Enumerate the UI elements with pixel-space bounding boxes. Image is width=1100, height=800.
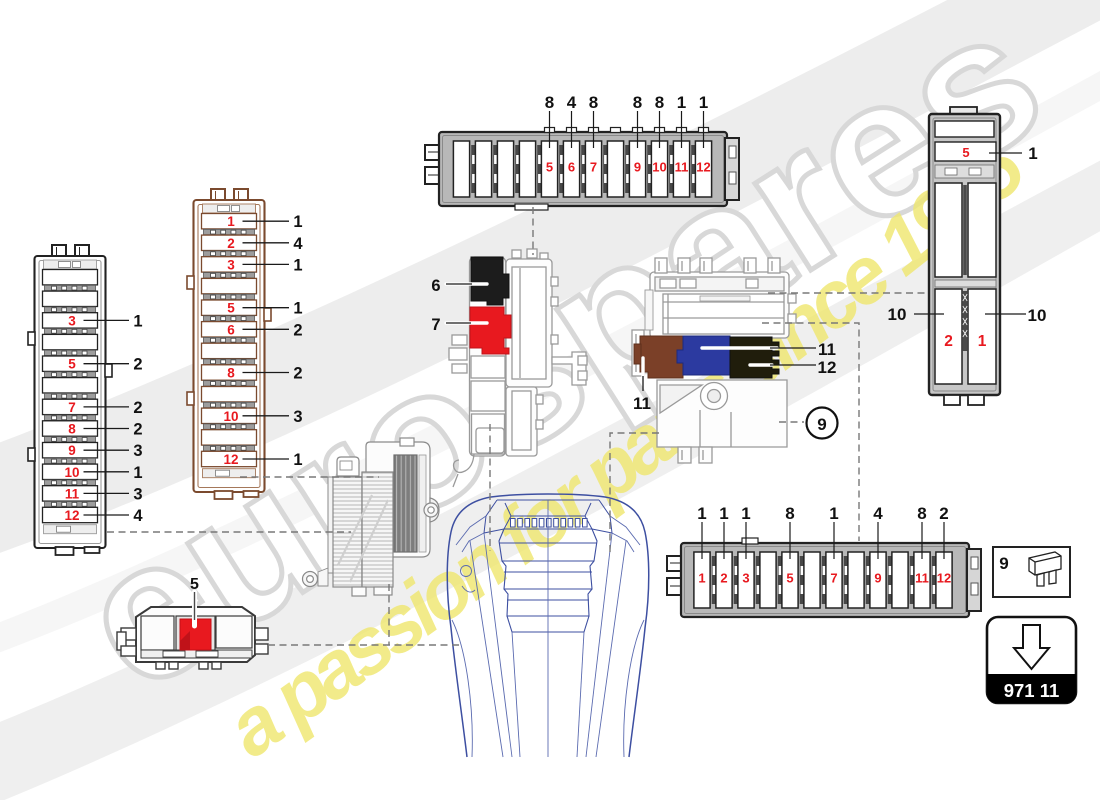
- svg-text:4: 4: [873, 504, 883, 523]
- svg-text:12: 12: [696, 160, 710, 175]
- svg-text:1: 1: [293, 451, 302, 469]
- svg-text:5: 5: [786, 571, 793, 586]
- svg-text:2: 2: [939, 504, 948, 523]
- svg-text:2: 2: [133, 421, 142, 439]
- svg-text:12: 12: [937, 571, 951, 586]
- svg-text:1: 1: [978, 333, 987, 350]
- svg-text:10: 10: [64, 465, 79, 480]
- svg-text:3: 3: [293, 408, 302, 426]
- svg-text:1: 1: [293, 256, 302, 274]
- svg-text:5: 5: [962, 145, 969, 160]
- svg-text:5: 5: [546, 160, 553, 175]
- svg-text:5: 5: [190, 576, 199, 593]
- svg-text:8: 8: [545, 93, 554, 112]
- svg-text:6: 6: [431, 277, 440, 295]
- svg-text:4: 4: [293, 235, 303, 253]
- svg-text:2: 2: [133, 356, 142, 374]
- svg-text:1: 1: [227, 214, 235, 229]
- svg-text:2: 2: [944, 333, 953, 350]
- svg-text:8: 8: [655, 93, 664, 112]
- svg-text:3: 3: [742, 571, 749, 586]
- svg-text:8: 8: [633, 93, 642, 112]
- svg-text:1: 1: [697, 504, 706, 523]
- svg-text:7: 7: [590, 160, 597, 175]
- svg-text:1: 1: [133, 312, 142, 330]
- svg-text:5: 5: [227, 301, 235, 316]
- svg-text:2: 2: [293, 321, 302, 339]
- svg-text:11: 11: [915, 571, 929, 586]
- svg-text:2: 2: [133, 399, 142, 417]
- svg-text:3: 3: [133, 442, 142, 460]
- svg-text:8: 8: [917, 504, 926, 523]
- svg-text:4: 4: [567, 93, 577, 112]
- svg-text:9: 9: [634, 160, 641, 175]
- svg-text:7: 7: [68, 400, 76, 415]
- svg-text:1: 1: [699, 93, 708, 112]
- svg-text:11: 11: [65, 486, 80, 501]
- svg-text:3: 3: [133, 485, 142, 503]
- svg-text:7: 7: [431, 316, 440, 334]
- svg-text:12: 12: [64, 508, 79, 523]
- svg-text:3: 3: [68, 313, 76, 328]
- svg-text:1: 1: [719, 504, 728, 523]
- svg-text:12: 12: [223, 452, 238, 467]
- svg-text:8: 8: [227, 366, 235, 381]
- svg-text:9: 9: [874, 571, 881, 586]
- svg-text:8: 8: [589, 93, 598, 112]
- svg-text:1: 1: [293, 213, 302, 231]
- svg-text:1: 1: [1028, 144, 1037, 163]
- svg-text:2: 2: [720, 571, 727, 586]
- svg-text:7: 7: [830, 571, 837, 586]
- svg-text:1: 1: [133, 464, 142, 482]
- svg-text:1: 1: [829, 504, 838, 523]
- svg-text:2: 2: [293, 365, 302, 383]
- svg-text:9: 9: [817, 415, 826, 434]
- svg-text:12: 12: [818, 358, 837, 377]
- svg-text:3: 3: [227, 257, 235, 272]
- svg-text:4: 4: [133, 507, 143, 525]
- svg-text:1: 1: [741, 504, 750, 523]
- svg-text:5: 5: [68, 357, 76, 372]
- svg-text:10: 10: [652, 160, 666, 175]
- svg-text:1: 1: [677, 93, 686, 112]
- svg-text:6: 6: [227, 322, 235, 337]
- svg-text:6: 6: [568, 160, 575, 175]
- svg-text:1: 1: [698, 571, 705, 586]
- svg-text:10: 10: [1028, 306, 1047, 325]
- svg-text:2: 2: [227, 236, 235, 251]
- svg-text:11: 11: [633, 394, 651, 413]
- svg-text:971 11: 971 11: [1004, 680, 1060, 701]
- svg-text:11: 11: [675, 160, 689, 175]
- svg-text:10: 10: [223, 409, 238, 424]
- svg-text:8: 8: [68, 422, 76, 437]
- svg-text:1: 1: [293, 300, 302, 318]
- svg-text:9: 9: [999, 554, 1008, 573]
- svg-text:11: 11: [818, 340, 836, 359]
- svg-text:9: 9: [68, 443, 76, 458]
- svg-text:8: 8: [785, 504, 794, 523]
- svg-text:10: 10: [888, 305, 907, 324]
